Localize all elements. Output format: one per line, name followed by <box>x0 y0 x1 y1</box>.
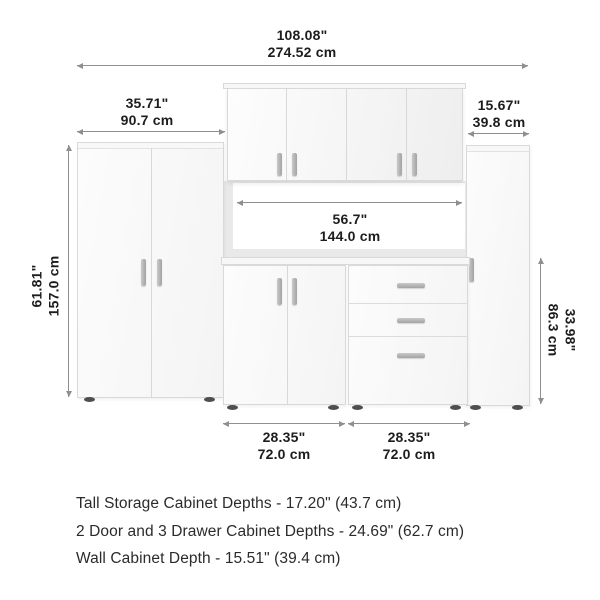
tall-storage-cabinet-right <box>466 145 530 406</box>
cabinet-foot <box>204 397 215 402</box>
drawer-divider <box>349 336 467 337</box>
dim-label-base-cabinet-height: 33.98" 86.3 cm <box>546 304 579 357</box>
dim-label-tall-cabinet-width: 35.71" 90.7 cm <box>121 95 174 128</box>
door-handle <box>397 153 402 176</box>
note-wall-cabinet-depth: Wall Cabinet Depth - 15.51" (39.4 cm) <box>76 545 464 573</box>
depth-notes: Tall Storage Cabinet Depths - 17.20" (43… <box>76 490 464 573</box>
dim-inches: 35.71" <box>121 95 174 112</box>
cabinet-top-panel <box>467 146 529 152</box>
dim-label-overall-width: 108.08" 274.52 cm <box>268 27 337 60</box>
dim-inches: 56.7" <box>320 211 381 228</box>
drawer-handle <box>397 353 425 358</box>
door-divider <box>287 266 288 404</box>
base-countertop <box>221 257 470 265</box>
cabinet-dimension-diagram: 108.08" 274.52 cm 35.71" 90.7 cm 15.67" … <box>0 0 600 600</box>
drawer-handle <box>397 283 425 288</box>
door-divider <box>406 89 407 180</box>
tall-storage-cabinet-left <box>77 142 224 398</box>
note-base-cabinet-depth: 2 Door and 3 Drawer Cabinet Depths - 24.… <box>76 518 464 546</box>
dim-label-tall-cabinet-height: 61.81" 157.0 cm <box>29 256 62 317</box>
dim-line-base-cabinet-height <box>540 258 541 404</box>
door-handle <box>157 259 162 286</box>
door-handle <box>141 259 146 286</box>
wall-cabinet <box>227 88 463 181</box>
dim-label-base-left-width: 28.35" 72.0 cm <box>258 429 311 462</box>
dim-label-middle-span: 56.7" 144.0 cm <box>320 211 381 244</box>
dim-inches: 33.98" <box>562 304 579 357</box>
dim-inches: 28.35" <box>258 429 311 446</box>
door-handle <box>277 153 282 176</box>
note-tall-cabinet-depth: Tall Storage Cabinet Depths - 17.20" (43… <box>76 490 464 518</box>
dim-metric: 274.52 cm <box>268 44 337 61</box>
drawer-handle <box>397 318 425 323</box>
door-divider <box>151 148 152 397</box>
three-drawer-base-cabinet <box>348 265 468 405</box>
cabinet-foot <box>450 405 461 410</box>
dim-line-overall-width <box>77 65 528 66</box>
dim-label-base-right-width: 28.35" 72.0 cm <box>383 429 436 462</box>
dim-metric: 86.3 cm <box>546 304 563 357</box>
cabinet-foot <box>512 405 523 410</box>
dim-inches: 15.67" <box>473 97 526 114</box>
door-handle <box>292 278 297 305</box>
dim-line-tall-cabinet-height <box>68 145 69 397</box>
dim-metric: 72.0 cm <box>383 446 436 463</box>
dim-metric: 90.7 cm <box>121 112 174 129</box>
cabinet-foot <box>328 405 339 410</box>
door-divider <box>286 89 287 180</box>
dim-metric: 39.8 cm <box>473 114 526 131</box>
dim-metric: 144.0 cm <box>320 228 381 245</box>
cabinet-foot <box>470 405 481 410</box>
dim-line-base-right-width <box>348 423 470 424</box>
dim-inches: 108.08" <box>268 27 337 44</box>
cabinet-foot <box>84 397 95 402</box>
dim-line-narrow-cabinet-width <box>468 133 529 134</box>
dim-line-base-left-width <box>223 423 345 424</box>
dim-label-narrow-cabinet-width: 15.67" 39.8 cm <box>473 97 526 130</box>
dim-line-middle-span <box>237 202 462 203</box>
dim-line-tall-cabinet-width <box>77 131 225 132</box>
dim-metric: 72.0 cm <box>258 446 311 463</box>
door-handle <box>277 278 282 305</box>
two-door-base-cabinet <box>223 265 346 405</box>
cabinet-foot <box>227 405 238 410</box>
drawer-divider <box>349 303 467 304</box>
dim-metric: 157.0 cm <box>45 256 62 317</box>
door-handle <box>292 153 297 176</box>
cabinet-foot <box>352 405 363 410</box>
dim-inches: 61.81" <box>29 256 46 317</box>
door-divider <box>346 89 347 180</box>
dim-inches: 28.35" <box>383 429 436 446</box>
door-handle <box>412 153 417 176</box>
